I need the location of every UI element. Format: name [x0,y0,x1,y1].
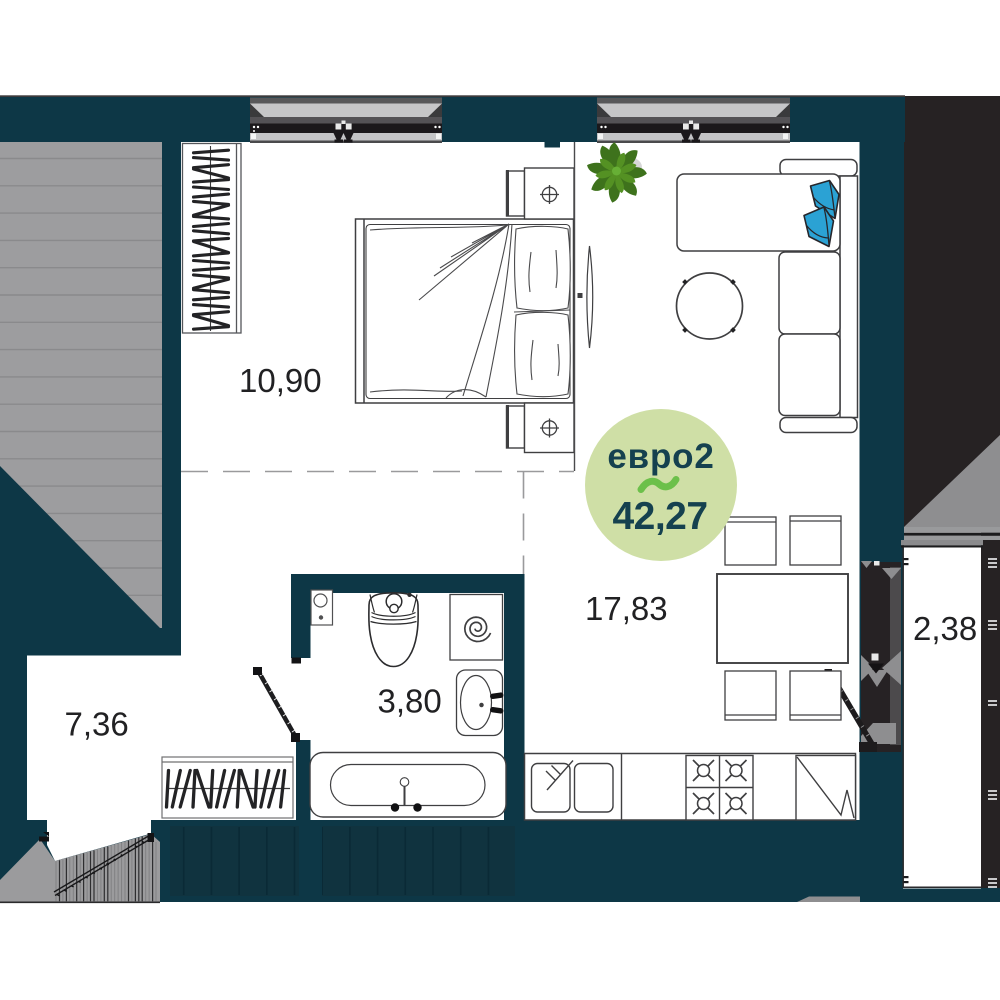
svg-text:17,83: 17,83 [585,590,668,627]
svg-text:42,27: 42,27 [612,495,707,538]
svg-text:3,80: 3,80 [378,683,442,720]
svg-text:7,36: 7,36 [65,706,129,743]
svg-text:евро2: евро2 [607,437,714,476]
svg-text:10,90: 10,90 [239,362,322,399]
svg-text:2,38: 2,38 [913,610,977,647]
